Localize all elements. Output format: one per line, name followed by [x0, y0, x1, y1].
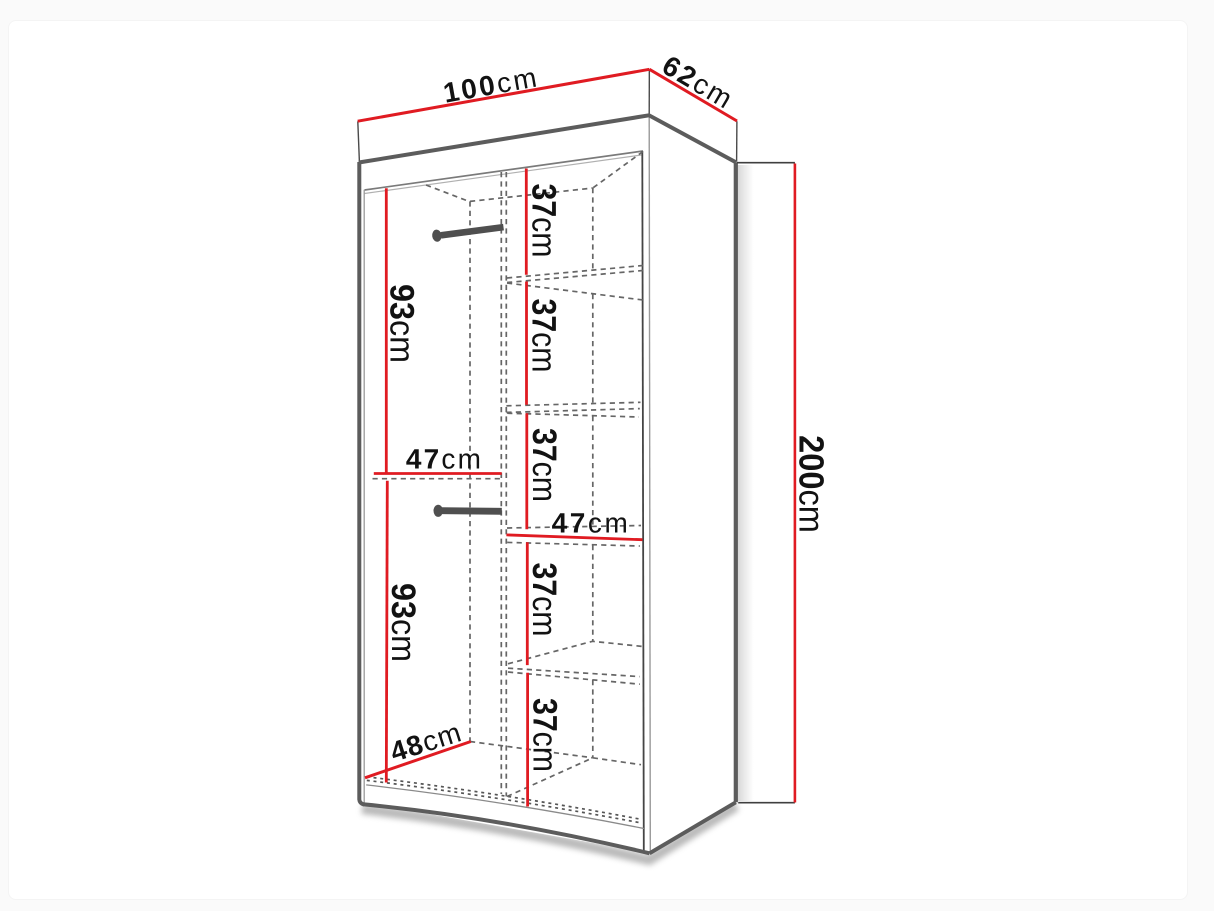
svg-text:93cm: 93cm — [383, 284, 421, 363]
svg-text:37cm: 37cm — [524, 183, 562, 257]
svg-text:37cm: 37cm — [525, 562, 563, 636]
svg-text:37cm: 37cm — [524, 298, 562, 372]
svg-text:37cm: 37cm — [525, 428, 563, 502]
svg-text:93cm: 93cm — [384, 583, 422, 662]
svg-text:47cm: 47cm — [406, 443, 483, 474]
svg-text:200cm: 200cm — [792, 435, 831, 533]
svg-text:47cm: 47cm — [552, 507, 631, 538]
svg-text:37cm: 37cm — [526, 698, 564, 772]
